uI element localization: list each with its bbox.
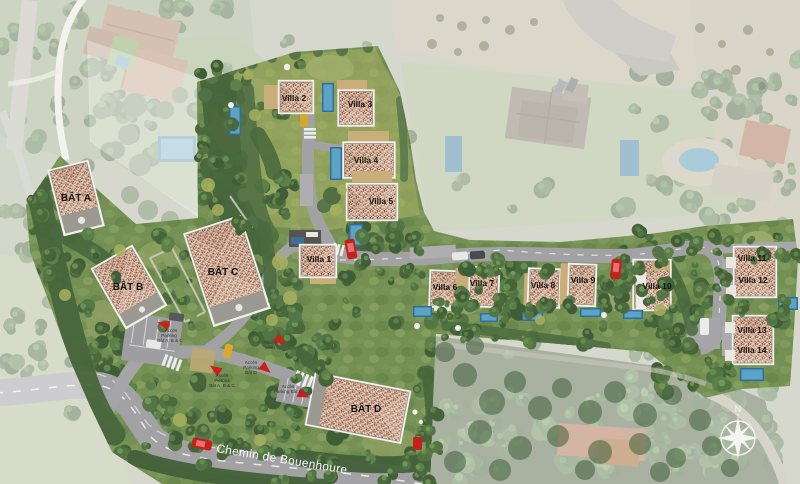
svg-text:Villa 1: Villa 1 <box>307 254 332 264</box>
svg-text:BÂT D: BÂT D <box>351 402 382 415</box>
svg-text:Villa 14: Villa 14 <box>737 345 766 355</box>
svg-text:BÂT A: BÂT A <box>61 191 91 204</box>
svg-text:BÂT C: BÂT C <box>208 265 239 278</box>
svg-text:Villas: Villas <box>265 345 277 350</box>
svg-text:Villa 4: Villa 4 <box>354 155 379 165</box>
svg-text:Villa 3: Villa 3 <box>348 99 373 109</box>
svg-text:BÂT B: BÂT B <box>113 280 144 293</box>
svg-text:Villa 12: Villa 12 <box>738 275 767 285</box>
svg-text:Villa 6: Villa 6 <box>433 282 458 292</box>
svg-text:Bât D: Bât D <box>245 370 257 375</box>
svg-text:Parking Bât D: Parking Bât D <box>274 389 303 394</box>
svg-text:Villa 10: Villa 10 <box>642 281 671 291</box>
svg-text:Villa 9: Villa 9 <box>571 275 596 285</box>
svg-text:Villa 7: Villa 7 <box>470 278 495 288</box>
svg-text:Villa 8: Villa 8 <box>531 280 556 290</box>
svg-text:Villa 2: Villa 2 <box>282 93 307 103</box>
svg-text:N: N <box>735 404 742 414</box>
svg-text:Villa 13: Villa 13 <box>737 325 766 335</box>
svg-text:Villa 11: Villa 11 <box>738 253 767 263</box>
svg-text:Bât A, B & C: Bât A, B & C <box>209 383 235 388</box>
svg-text:Bât A, B & C: Bât A, B & C <box>157 338 183 343</box>
svg-text:Villa 5: Villa 5 <box>369 196 394 206</box>
